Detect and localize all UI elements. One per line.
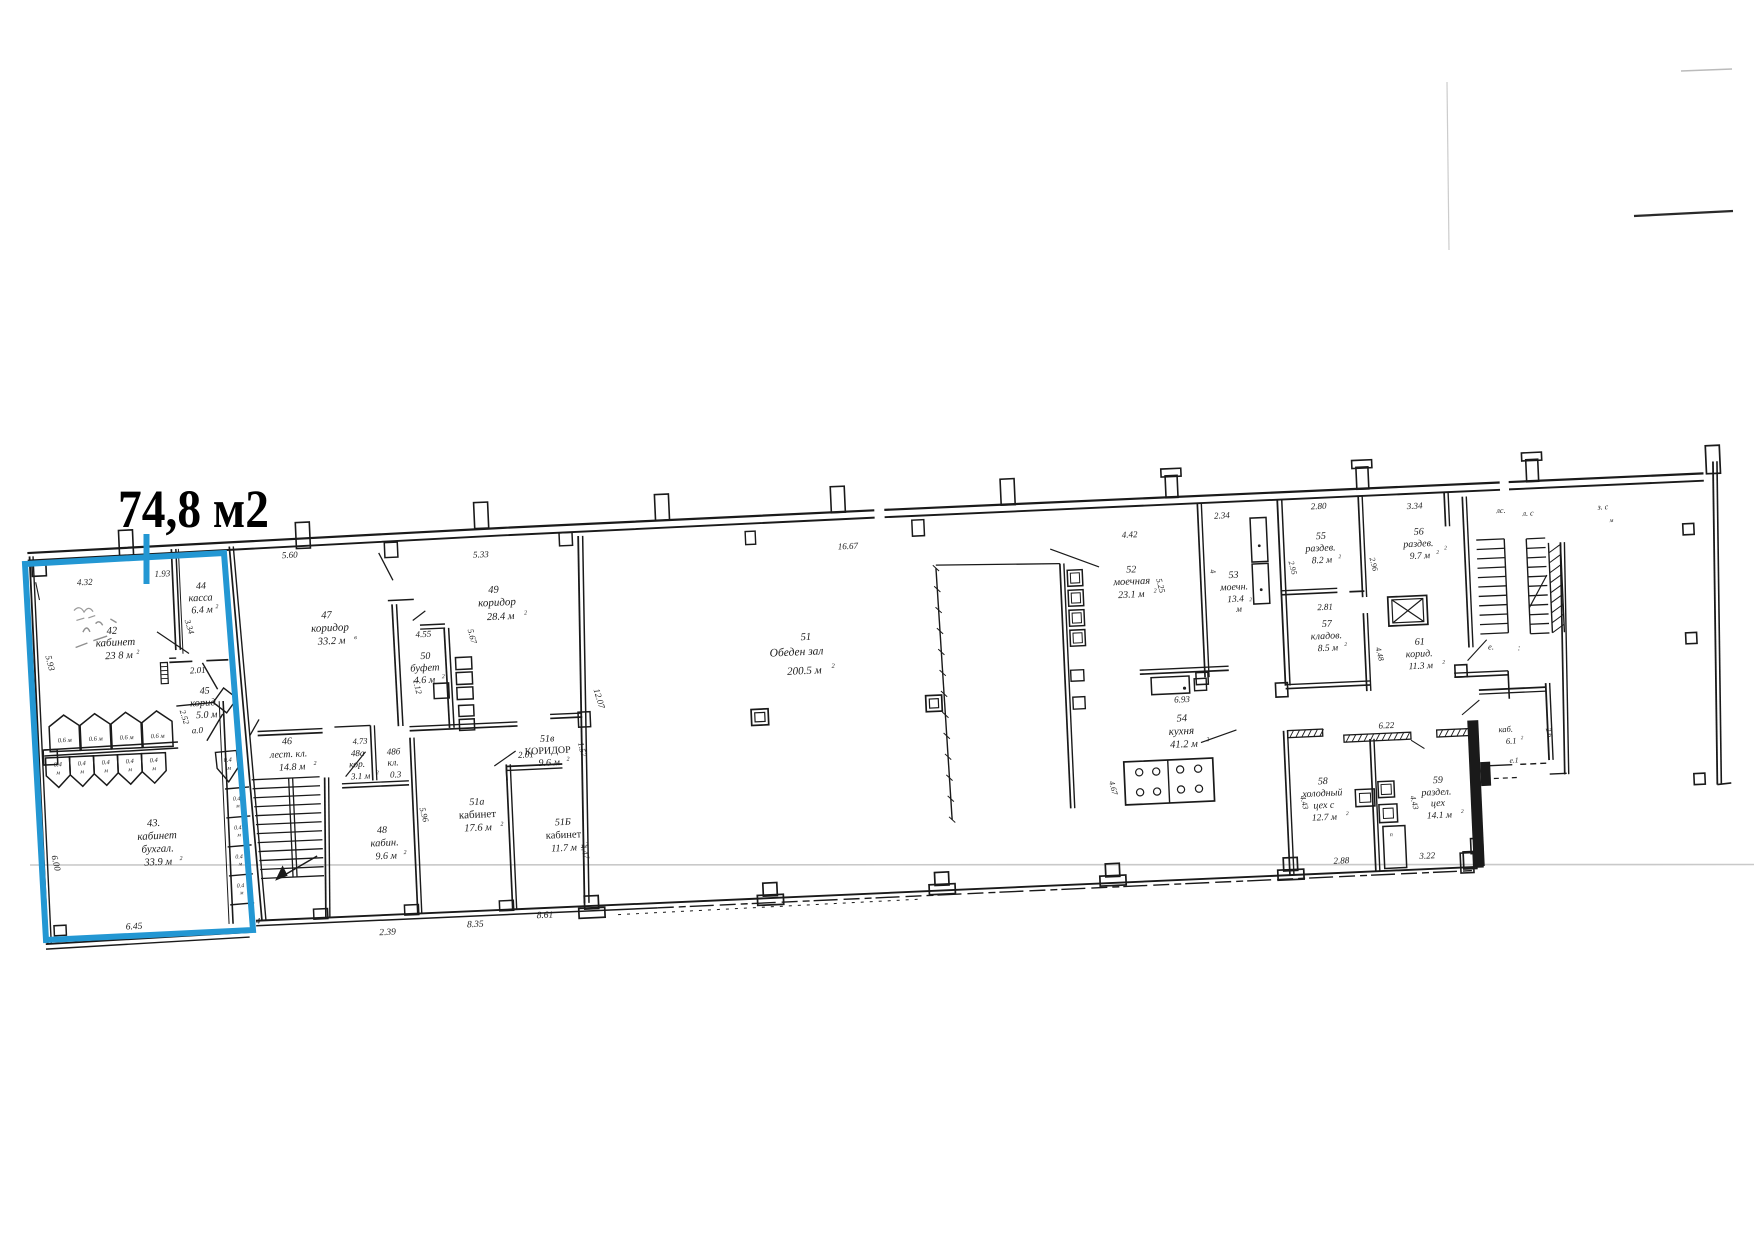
svg-text:5.0 м: 5.0 м (196, 709, 218, 721)
svg-text:0.4: 0.4 (102, 759, 111, 766)
svg-text:4.32: 4.32 (77, 577, 94, 588)
svg-text:2.01: 2.01 (518, 749, 534, 760)
svg-text:8.61: 8.61 (536, 911, 553, 922)
svg-text:51: 51 (800, 632, 811, 643)
svg-text:2: 2 (442, 674, 445, 680)
svg-text:2: 2 (1442, 660, 1445, 666)
svg-text:2: 2 (1346, 811, 1349, 817)
svg-text:2: 2 (524, 610, 527, 616)
svg-text:0.4: 0.4 (235, 853, 243, 860)
svg-text:9.6 м: 9.6 м (538, 757, 560, 769)
svg-text:кл.: кл. (387, 758, 399, 768)
svg-text:200.5 м: 200.5 м (787, 664, 822, 678)
svg-text:коридор: коридор (311, 621, 350, 635)
svg-text:м: м (127, 767, 132, 773)
svg-text:4.73: 4.73 (352, 736, 367, 747)
svg-text:48: 48 (377, 825, 387, 836)
svg-text:8.2 м: 8.2 м (1312, 556, 1333, 567)
svg-text:0.4: 0.4 (233, 795, 241, 802)
svg-text:2.01: 2.01 (190, 665, 206, 676)
svg-text:17.6 м: 17.6 м (464, 822, 492, 834)
svg-text:53: 53 (1228, 570, 1238, 581)
svg-text:м: м (235, 803, 240, 809)
svg-text:коридор: коридор (478, 596, 517, 610)
svg-text:бухгал.: бухгал. (141, 842, 174, 855)
svg-text:кабинет: кабинет (137, 829, 177, 843)
svg-text:46: 46 (282, 736, 292, 747)
svg-text:м: м (1608, 518, 1613, 524)
svg-text:раздел.: раздел. (1420, 786, 1451, 798)
svg-text:5.33: 5.33 (473, 549, 490, 560)
svg-text:23.1 м: 23.1 м (1118, 589, 1145, 601)
svg-text:раздев.: раздев. (1304, 542, 1336, 554)
svg-text:6.45: 6.45 (126, 922, 143, 933)
svg-text:м: м (239, 890, 244, 896)
svg-text:лест. кл.: лест. кл. (269, 748, 308, 761)
svg-text:33.2 м: 33.2 м (317, 635, 346, 647)
svg-text:кухня: кухня (1169, 725, 1195, 738)
svg-text:кабинет: кабинет (546, 829, 582, 842)
svg-text:буфет: буфет (410, 662, 440, 674)
svg-text:74,8 м2: 74,8 м2 (118, 479, 269, 539)
svg-text:23 8 м: 23 8 м (105, 650, 133, 662)
svg-text:0.4: 0.4 (234, 824, 242, 831)
svg-text:28.4 м: 28.4 м (487, 611, 515, 623)
svg-text:3.34: 3.34 (1406, 500, 1424, 511)
svg-text:2: 2 (136, 650, 139, 656)
svg-text:59: 59 (1433, 775, 1443, 786)
svg-text:кабинет: кабинет (459, 808, 497, 822)
svg-text:0.6 м: 0.6 м (151, 733, 165, 741)
svg-text:44: 44 (196, 581, 206, 592)
svg-text:2: 2 (1154, 588, 1157, 594)
svg-text:4.42: 4.42 (1122, 529, 1139, 540)
svg-text:2: 2 (1249, 597, 1252, 603)
svg-text:е.1: е.1 (1509, 755, 1518, 764)
svg-text:11.7 м: 11.7 м (551, 842, 578, 854)
svg-text:61: 61 (1414, 636, 1424, 647)
svg-text:51Б: 51Б (555, 817, 571, 829)
svg-text:2: 2 (403, 850, 406, 856)
svg-text:3.1 м: 3.1 м (350, 771, 371, 782)
svg-text:33.9 м: 33.9 м (143, 856, 172, 868)
svg-text:м: м (55, 770, 60, 776)
svg-text:з. с: з. с (1596, 502, 1609, 512)
svg-text:0.6 м: 0.6 м (89, 735, 103, 743)
svg-text:1.93: 1.93 (154, 568, 171, 579)
svg-text:48а: 48а (351, 748, 365, 759)
svg-text:12.7 м: 12.7 м (1312, 813, 1337, 824)
svg-text:55: 55 (1316, 531, 1326, 542)
svg-text:0.6 м: 0.6 м (58, 737, 72, 745)
svg-text:2.34: 2.34 (1214, 510, 1231, 521)
svg-text:16.67: 16.67 (838, 541, 859, 552)
svg-text:51в: 51в (540, 733, 555, 745)
svg-text:а.0: а.0 (192, 725, 204, 736)
svg-text:2: 2 (1461, 809, 1464, 815)
svg-text:касса: касса (188, 592, 213, 604)
svg-text:0.4: 0.4 (54, 761, 63, 768)
svg-text:е.: е. (1488, 641, 1494, 651)
svg-text:41.2 м: 41.2 м (1170, 739, 1198, 751)
svg-text:м: м (236, 832, 241, 838)
svg-text:8.5 м: 8.5 м (1318, 643, 1339, 654)
svg-text:57: 57 (1322, 619, 1333, 630)
svg-text:2: 2 (1338, 554, 1341, 560)
svg-text:л. с: л. с (1521, 508, 1534, 518)
svg-text:2.39: 2.39 (379, 928, 396, 939)
svg-text:п: п (1390, 832, 1393, 838)
svg-text:моечная: моечная (1112, 576, 1150, 589)
svg-text:50: 50 (420, 651, 430, 662)
svg-text:2.81: 2.81 (1317, 602, 1333, 613)
svg-text:м: м (103, 768, 108, 774)
svg-text:лс.: лс. (1495, 506, 1506, 515)
svg-text:9.7 м: 9.7 м (1410, 551, 1431, 562)
svg-text:42: 42 (106, 626, 118, 637)
svg-text:6.1: 6.1 (1506, 735, 1517, 745)
svg-text:2: 2 (1344, 642, 1347, 648)
svg-text:цех: цех (1431, 798, 1446, 810)
svg-text:9.6 м: 9.6 м (375, 850, 397, 862)
svg-text:м: м (151, 766, 156, 772)
svg-text:6.22: 6.22 (1378, 720, 1395, 731)
svg-text:54: 54 (1176, 713, 1188, 724)
svg-text:5.60: 5.60 (282, 550, 299, 561)
svg-text:47: 47 (321, 610, 333, 621)
svg-text:Обеден зал: Обеден зал (769, 645, 823, 659)
svg-text:51а: 51а (469, 796, 484, 808)
svg-text:раздев.: раздев. (1402, 538, 1434, 550)
svg-text:0.3: 0.3 (390, 769, 402, 780)
svg-text:6.93: 6.93 (1174, 694, 1191, 705)
svg-text:2: 2 (1436, 550, 1439, 556)
svg-text:49: 49 (488, 585, 500, 596)
svg-text:м: м (1235, 604, 1242, 614)
svg-text:14.1 м: 14.1 м (1427, 810, 1452, 821)
svg-text:0.4: 0.4 (126, 758, 135, 765)
svg-text:3.22: 3.22 (1418, 850, 1436, 861)
svg-text:43.: 43. (147, 818, 161, 830)
svg-text:52: 52 (1126, 564, 1136, 575)
svg-text:0.4: 0.4 (224, 757, 233, 764)
svg-text:2: 2 (215, 604, 218, 610)
svg-text:м: м (226, 766, 231, 772)
svg-text:0.4: 0.4 (78, 760, 87, 767)
svg-text:2.80: 2.80 (1310, 501, 1327, 512)
svg-text:6.4 м: 6.4 м (191, 604, 213, 616)
svg-text:56: 56 (1414, 526, 1424, 537)
svg-text:2.88: 2.88 (1333, 855, 1350, 866)
svg-text:2: 2 (566, 757, 569, 763)
svg-text:моечн.: моечн. (1219, 581, 1248, 593)
svg-text:2: 2 (180, 856, 183, 862)
svg-text:кабин.: кабин. (370, 837, 399, 849)
svg-text:2: 2 (500, 822, 503, 828)
svg-text:0.4: 0.4 (150, 757, 159, 764)
svg-text:11.3 м: 11.3 м (1408, 661, 1433, 672)
svg-text:8.35: 8.35 (467, 920, 484, 931)
svg-text:58: 58 (1318, 776, 1328, 787)
svg-text:м: м (238, 861, 243, 867)
svg-text:45: 45 (199, 686, 209, 697)
svg-text:4.55: 4.55 (415, 629, 432, 640)
svg-text:корид.: корид. (1406, 648, 1433, 660)
svg-text:цех с: цех с (1313, 800, 1335, 812)
svg-text:м: м (79, 769, 84, 775)
svg-text:2: 2 (313, 761, 316, 767)
svg-text:кладов.: кладов. (1311, 630, 1343, 642)
svg-text:0.4: 0.4 (236, 882, 244, 889)
svg-text:14.8 м: 14.8 м (279, 761, 306, 773)
svg-text:каб.: каб. (1498, 724, 1513, 735)
svg-text:2: 2 (1444, 545, 1447, 551)
svg-text:48б: 48б (387, 746, 401, 757)
svg-text:2: 2 (376, 770, 379, 776)
svg-text:0.6 м: 0.6 м (120, 734, 134, 742)
